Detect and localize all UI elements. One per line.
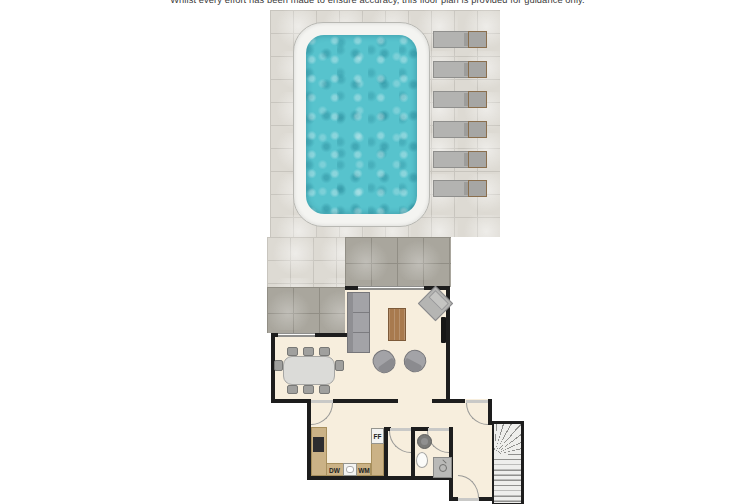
dishwasher-label: DW — [329, 467, 340, 474]
patio-door-glass — [358, 286, 424, 290]
dining-chair — [287, 347, 298, 356]
stair-flight — [494, 455, 521, 503]
dining-chair — [319, 347, 330, 356]
sofa — [347, 292, 370, 353]
hob — [313, 437, 324, 452]
entrance-door — [458, 498, 479, 501]
dining-window — [278, 333, 315, 337]
fridge-freezer-label: FF — [374, 433, 382, 440]
sun-lounger — [433, 151, 487, 168]
wall-living-top-left — [345, 286, 358, 290]
wall-storage-bathroom — [411, 427, 415, 480]
bathroom-basin — [417, 434, 432, 449]
pool-water — [306, 35, 417, 214]
dining-chair — [303, 385, 314, 394]
sun-lounger — [433, 121, 487, 138]
shower — [433, 457, 452, 478]
wall-kitchen-storage — [384, 427, 388, 480]
staircase — [492, 421, 524, 504]
kitchen-counter-right — [371, 443, 384, 476]
coffee-table — [388, 308, 406, 341]
sun-lounger — [433, 61, 487, 78]
disclaimer-text: Whilst every effort has been made to ens… — [0, 0, 755, 5]
dining-chair — [303, 347, 314, 356]
patio-extension — [267, 237, 345, 287]
dining-table — [283, 356, 335, 385]
sun-lounger — [433, 31, 487, 48]
terrace-upper — [345, 237, 451, 287]
dining-chair — [319, 385, 330, 394]
dining-chair — [287, 385, 298, 394]
kitchen-sink — [343, 463, 357, 476]
washing-machine: WM — [356, 465, 372, 475]
tv — [441, 317, 446, 343]
dining-chair — [335, 360, 344, 371]
wall-bottom-c — [432, 399, 465, 403]
wall-hall-bottom-right — [479, 497, 492, 501]
sun-lounger — [433, 91, 487, 108]
sun-lounger — [433, 180, 487, 197]
floor-plan: Whilst every effort has been made to ens… — [0, 0, 755, 504]
wall-annex-bottom — [307, 476, 453, 480]
stair-winder — [494, 424, 521, 455]
toilet — [416, 452, 428, 468]
fridge-freezer: FF — [371, 428, 384, 444]
dining-chair — [274, 360, 283, 371]
dishwasher: DW — [326, 465, 343, 475]
swimming-pool — [293, 22, 430, 227]
wall-bottom-a — [271, 399, 311, 403]
wall-bottom-b — [333, 399, 398, 403]
terrace-side — [267, 287, 345, 333]
washing-machine-label: WM — [358, 467, 370, 474]
